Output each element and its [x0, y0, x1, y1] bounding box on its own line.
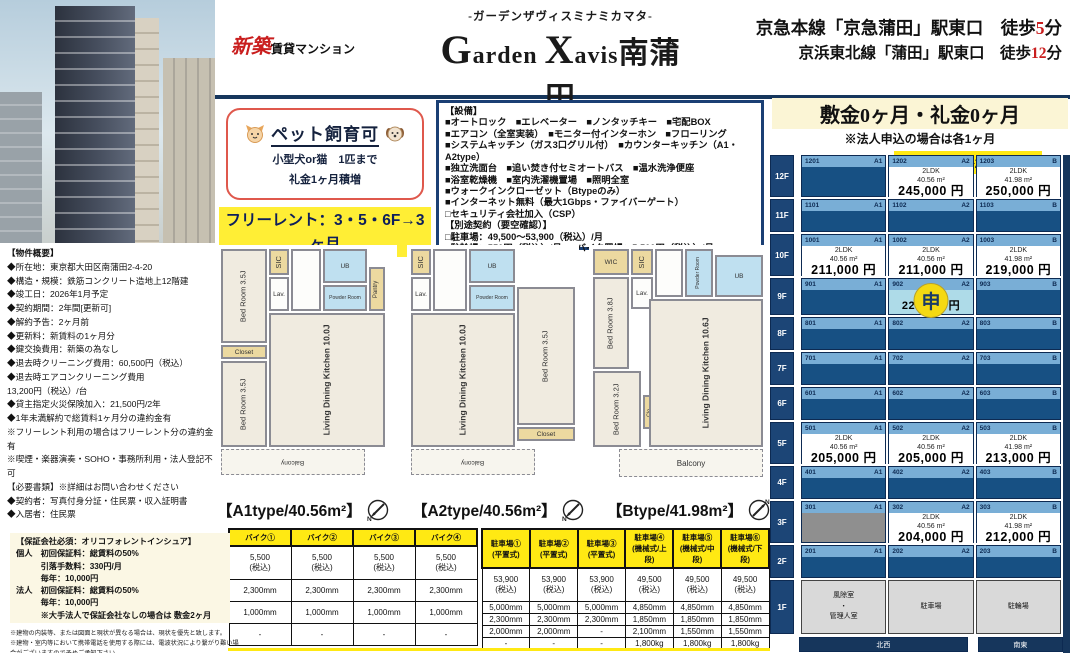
unit-type: B — [1052, 469, 1057, 476]
floor-label: 11F — [770, 199, 794, 232]
room-number: 1201 — [805, 158, 819, 165]
room-number: 1202 — [892, 158, 906, 165]
unit-type: A1 — [874, 281, 882, 288]
pet-line-2: 礼金1ヶ月積増 — [228, 171, 422, 187]
room-label: Bed Room 3.8J — [607, 297, 616, 349]
text-line: ■オートロック ■エレベーター ■ノンタッチキー ■宅配BOX — [445, 117, 755, 128]
table-cell: 2,000mm — [530, 626, 578, 638]
table-cell: 4,850mm — [721, 602, 769, 614]
unit-type: B — [1052, 158, 1057, 165]
table-cell: 1,850mm — [625, 614, 673, 626]
floor-row-8F: 8F801A1802A2803B — [770, 317, 1063, 350]
unit-type: B — [1052, 425, 1057, 432]
room-a2-bath: UB — [469, 249, 515, 283]
unit-cell-body — [802, 364, 885, 384]
unit-cell-header: 701A1 — [802, 353, 885, 364]
floor-row-2F: 2F201A1202A2203B — [770, 545, 1063, 578]
unit-cell-1102: 1102A2 — [888, 199, 973, 232]
right-border-strip — [1063, 155, 1070, 653]
text-line: ◆1年未満解約で総賃料1ヶ月分の違約金有 — [7, 412, 219, 426]
room-label: Living Dining Kitchen 10.6J — [701, 317, 711, 428]
floor-label: 4F — [770, 466, 794, 499]
room-b-bedroom-2: Bed Room 3.2J — [593, 371, 641, 447]
unit-cell-header: 503B — [977, 423, 1060, 434]
bike-parking-table: バイク①バイク②バイク③バイク④5,500 (税込)5,500 (税込)5,50… — [228, 528, 478, 646]
table-header-cell: 駐車場② (平置式) — [530, 529, 578, 568]
room-a2-hall — [433, 249, 467, 311]
text-line: ◆解約予告：2ヶ月前 — [7, 316, 219, 330]
plan-label-text: 【Btype/41.98m²】 — [607, 499, 743, 521]
room-number: 302 — [892, 504, 903, 511]
room-number: 1001 — [805, 237, 819, 244]
pet-title: ペット飼育可 — [271, 120, 379, 147]
building-photo — [0, 0, 215, 243]
table-cell: - — [353, 624, 415, 646]
unit-cell-303: 303B2LDK41.98 m²212,000 円 — [976, 501, 1061, 543]
table-cell: 2,300mm — [291, 580, 353, 602]
text-line: ■インターネット無料（最大1Gbps・ファイバーゲート） — [445, 197, 755, 208]
table-cell: - — [415, 624, 477, 646]
room-a1-hall — [291, 249, 321, 311]
floor-row-1F: 1F風除室 ・ 管理人室駐車場駐輪場 — [770, 580, 1063, 634]
room-number: 603 — [980, 390, 991, 397]
title-avis: avis — [575, 43, 619, 69]
unit-type: B — [1052, 390, 1057, 397]
room-b-balcony: Balcony — [619, 449, 763, 477]
room-number: 902 — [892, 281, 903, 288]
unit-type: B — [1052, 504, 1057, 511]
text-line: ■エアコン（全室実装） ■モニター付インターホン ■フローリング — [445, 129, 755, 140]
table-cell: 5,500 (税込) — [415, 546, 477, 580]
unit-type: A2 — [961, 469, 969, 476]
unit-cell-header: 403B — [977, 467, 1060, 478]
plan-label-b: 【Btype/41.98m²】 N — [607, 498, 771, 522]
room-a1-ldk: Living Dining Kitchen 10.0J — [269, 313, 385, 447]
unit-cell-603: 603B — [976, 387, 1061, 420]
unit-cell-802: 802A2 — [888, 317, 973, 350]
unit-cell-1203: 1203B2LDK41.98 m²250,000 円 — [976, 155, 1061, 197]
station-1-name: 京急本線「京急蒲田」駅東口 — [756, 18, 1001, 38]
room-a1-bedroom-2: Bed Room 3.5J — [221, 361, 267, 447]
unit-type: B — [1052, 355, 1057, 362]
table-cell: 5,000mm — [482, 602, 530, 614]
text-line: ◆更新料：新賃料の1ヶ月分 — [7, 330, 219, 344]
unit-cell-301: 301A1 — [801, 501, 886, 543]
orientation-bar: 北西 — [799, 637, 968, 652]
photo-main-tower — [55, 6, 135, 243]
table-cell: 1,000mm — [291, 602, 353, 624]
unit-cell-1202: 1202A22LDK40.56 m²245,000 円 — [888, 155, 973, 197]
room-label: Powder Room — [329, 295, 361, 301]
unit-type: A2 — [961, 425, 969, 432]
text-line: ※建物の内装等、または図面と現状が異なる場合は、現状を優先と致します。 — [10, 629, 240, 639]
floor-row-3F: 3F301A1302A22LDK40.56 m²204,000 円303B2LD… — [770, 501, 1063, 543]
unit-cell-body — [889, 364, 972, 384]
room-number: 201 — [805, 548, 816, 555]
text-line: 毎年：10,000円 — [16, 573, 224, 585]
floor-label: 2F — [770, 545, 794, 578]
unit-cell-header: 1101A1 — [802, 200, 885, 211]
table-header-cell: 駐車場④ (機械式/上段) — [625, 529, 673, 568]
text-line: 引落手数料：330円/月 — [16, 561, 224, 573]
facility-cell: 駐輪場 — [976, 580, 1061, 634]
unit-cell-header: 803B — [977, 318, 1060, 329]
table-cell: 1,550mm — [673, 626, 721, 638]
room-label: Bed Room 3.5J — [542, 330, 551, 382]
unit-cell-body — [802, 167, 885, 196]
unit-cell-body — [977, 557, 1060, 577]
room-number: 903 — [980, 281, 991, 288]
applied-badge: 申 — [913, 283, 948, 318]
unit-price-grid: 12F1201A11202A22LDK40.56 m²245,000 円1203… — [770, 155, 1063, 652]
unit-cell-body: 2LDK41.98 m²250,000 円 — [977, 167, 1060, 198]
room-label: Lav. — [415, 291, 427, 298]
room-number: 502 — [892, 425, 903, 432]
text-line: ◆竣工日：2026年1月予定 — [7, 288, 219, 302]
unit-type: A1 — [874, 504, 882, 511]
unit-cell-302: 302A22LDK40.56 m²204,000 円 — [888, 501, 973, 543]
unit-cell-header: 302A2 — [889, 502, 972, 513]
unit-type: A1 — [874, 320, 882, 327]
unit-cell-1003: 1003B2LDK41.98 m²219,000 円 — [976, 234, 1061, 276]
room-a1-pantry: Pantry — [369, 267, 385, 311]
table-header-cell: 駐車場⑤ (機械式/中段) — [673, 529, 721, 568]
room-a2-lavatory: Lav. — [411, 277, 431, 311]
room-a1-lavatory: Lav. — [269, 277, 289, 311]
floor-label: 8F — [770, 317, 794, 350]
unit-type: B — [1052, 202, 1057, 209]
car-parking-table: 駐車場① (平置式)駐車場② (平置式)駐車場③ (平置式)駐車場④ (機械式/… — [481, 528, 770, 650]
text-line: ◆契約者：写真付身分証・住民票・収入証明書 — [7, 495, 219, 509]
unit-cell-body — [977, 211, 1060, 231]
table-cell: 1,550mm — [721, 626, 769, 638]
unit-cell-header: 1203B — [977, 156, 1060, 167]
unit-cell-body — [889, 557, 972, 577]
room-number: 602 — [892, 390, 903, 397]
text-line: ※建物・室内等において携帯電話を使用する際には、電波状況により繋がり難い場合がご… — [10, 639, 240, 653]
room-number: 801 — [805, 320, 816, 327]
unit-cell-body — [802, 399, 885, 419]
guarantor-box: 【保証会社必須：オリコフォレントインシュア】個人 初回保証料：総賃料の50% 引… — [10, 533, 230, 623]
room-a2-bedroom: Bed Room 3.5J — [517, 287, 575, 425]
unit-type: A2 — [961, 355, 969, 362]
unit-cell-903: 903B — [976, 278, 1061, 315]
unit-cell-body: 2LDK40.56 m²204,000 円 — [889, 513, 972, 544]
room-label: UB — [487, 263, 496, 270]
new-build-badge: 新築賃貸マンション — [215, 0, 431, 95]
room-label: Living Dining Kitchen 10.0J — [322, 324, 332, 435]
unit-cell-header: 502A2 — [889, 423, 972, 434]
table-cell: - — [578, 626, 626, 638]
table-header-cell: 駐車場① (平置式) — [482, 529, 530, 568]
unit-type: B — [1052, 281, 1057, 288]
text-line: 【物件概要】 — [7, 247, 219, 261]
unit-cell-header: 1001A1 — [802, 235, 885, 246]
unit-cell-body: 2LDK40.56 m²211,000 円 — [889, 246, 972, 277]
unit-type: B — [1052, 548, 1057, 555]
unit-cell-header: 603B — [977, 388, 1060, 399]
room-label: Living Dining Kitchen 10.0J — [458, 324, 468, 435]
unit-cell-801: 801A1 — [801, 317, 886, 350]
unit-cell-header: 301A1 — [802, 502, 885, 513]
unit-type: A1 — [874, 548, 882, 555]
table-cell: 1,000mm — [353, 602, 415, 624]
station-2-walk: 徒歩 — [1000, 45, 1031, 62]
table-cell: 1,850mm — [673, 614, 721, 626]
fine-print: ※建物の内装等、または図面と現状が異なる場合は、現状を優先と致します。※建物・室… — [10, 629, 240, 653]
table-header-cell: バイク② — [291, 529, 353, 546]
unit-cell-body — [889, 399, 972, 419]
table-cell: 2,300mm — [229, 580, 291, 602]
unit-cell-body — [977, 399, 1060, 419]
floor-row-6F: 6F601A1602A2603B — [770, 387, 1063, 420]
room-a1-sic: SIC — [269, 249, 289, 275]
room-a2-ldk: Living Dining Kitchen 10.0J — [411, 313, 515, 447]
room-label: Bed Room 3.5J — [240, 270, 249, 322]
unit-cell-901: 901A1 — [801, 278, 886, 315]
room-a2-sic: SIC — [411, 249, 431, 275]
room-b-bath: UB — [715, 255, 763, 297]
unit-cell-header: 801A1 — [802, 318, 885, 329]
pet-allowed-box: ペット飼育可 小型犬or猫 1匹まで 礼金1ヶ月積増 — [226, 108, 424, 200]
text-line: ◆構造・規模：鉄筋コンクリート造地上12階建 — [7, 275, 219, 289]
compass-icon: N — [366, 498, 390, 522]
orientation-footer: 北西南東 — [799, 637, 1063, 652]
floor-label: 12F — [770, 155, 794, 197]
table-cell: 5,000mm — [530, 602, 578, 614]
title-arden: arden — [473, 43, 545, 69]
text-line: ◆入居者：住民票 — [7, 508, 219, 522]
facility-cell: 風除室 ・ 管理人室 — [801, 580, 886, 634]
text-line: ◆退去時クリーニング費用：60,500円（税込） — [7, 357, 219, 371]
unit-cell-body: 2LDK40.56 m²245,000 円 — [889, 167, 972, 198]
room-number: 501 — [805, 425, 816, 432]
unit-type: A1 — [874, 237, 882, 244]
unit-cell-201: 201A1 — [801, 545, 886, 578]
room-label: UB — [734, 273, 743, 280]
unit-cell-702: 702A2 — [888, 352, 973, 385]
unit-cell-body: 2LDK41.98 m²212,000 円 — [977, 513, 1060, 544]
room-label: WIC — [605, 259, 618, 266]
table-cell: 53,900 (税込) — [530, 568, 578, 602]
table-cell: 2,300mm — [578, 614, 626, 626]
table-cell: 2,100mm — [625, 626, 673, 638]
room-number: 402 — [892, 469, 903, 476]
unit-cell-header: 401A1 — [802, 467, 885, 478]
unit-cell-header: 601A1 — [802, 388, 885, 399]
station-1-walk: 徒歩 — [1001, 18, 1036, 38]
unit-cell-703: 703B — [976, 352, 1061, 385]
floorplan-a1: Bed Room 3.5J Closet Bed Room 3.5J SIC L… — [217, 245, 397, 493]
text-line: ◆貸主指定火災保険加入：21,500円/2年 — [7, 398, 219, 412]
room-label: Bed Room 3.2J — [613, 383, 622, 435]
unit-cell-701: 701A1 — [801, 352, 886, 385]
unit-type: A1 — [874, 469, 882, 476]
floor-row-4F: 4F401A1402A2403B — [770, 466, 1063, 499]
station-2-name: 京浜東北線「蒲田」駅東口 — [798, 45, 1000, 62]
table-header-cell: バイク④ — [415, 529, 477, 546]
unit-type: B — [1052, 237, 1057, 244]
unit-cell-403: 403B — [976, 466, 1061, 499]
table-cell: 2,300mm — [530, 614, 578, 626]
text-line: ※フリーレント利用の場合はフリーレント分の違約金有 — [7, 426, 219, 454]
unit-cell-header: 1202A2 — [889, 156, 972, 167]
table-cell: 5,500 (税込) — [229, 546, 291, 580]
unit-cell-501: 501A12LDK40.56 m²205,000 円 — [801, 422, 886, 464]
unit-cell-body — [889, 329, 972, 349]
room-number: 1103 — [980, 202, 994, 209]
floor-row-12F: 12F1201A11202A22LDK40.56 m²245,000 円1203… — [770, 155, 1063, 197]
table-cell: 2,300mm — [482, 614, 530, 626]
room-label: Balcony — [461, 459, 484, 466]
plan-label-a1: 【A1type/40.56m²】 N — [217, 498, 390, 522]
table-cell: 2,000mm — [482, 626, 530, 638]
unit-cell-body — [977, 364, 1060, 384]
room-number: 1003 — [980, 237, 994, 244]
unit-cell-body — [977, 290, 1060, 314]
room-label: UB — [340, 263, 349, 270]
text-line: ※大手法人で保証会社なしの場合は 敷金2ヶ月 — [16, 610, 224, 622]
unit-cell-body: 2LDK41.98 m²213,000 円 — [977, 434, 1060, 465]
unit-type: A1 — [874, 425, 882, 432]
unit-cell-body: 2LDK40.56 m²211,000 円 — [802, 246, 885, 277]
unit-cell-body — [977, 478, 1060, 498]
text-line: ◆鍵交換費用：新築の為なし — [7, 343, 219, 357]
unit-cell-body — [977, 329, 1060, 349]
floor-row-10F: 10F1001A12LDK40.56 m²211,000 円1002A22LDK… — [770, 234, 1063, 276]
deposit-note: ※法人申込の場合は各1ヶ月 — [772, 130, 1068, 147]
text-line: ■独立洗面台 ■追い焚き付セミオートバス ■温水洗浄便座 — [445, 163, 755, 174]
pet-line-1: 小型犬or猫 1匹まで — [228, 151, 422, 167]
table-cell: 49,500 (税込) — [673, 568, 721, 602]
compass-icon: N — [747, 498, 771, 522]
room-number: 701 — [805, 355, 816, 362]
table-header-cell: 駐車場⑥ (機械式/下段) — [721, 529, 769, 568]
title-block: -ガーデンザヴィスミナミカマタ- Garden Xavis南蒲田 — [431, 0, 690, 95]
unit-cell-header: 402A2 — [889, 467, 972, 478]
title-g: G — [440, 27, 472, 72]
property-overview: 【物件概要】◆所在地：東京都大田区南蒲田2-4-20◆構造・規模：鉄筋コンクリー… — [7, 247, 219, 522]
room-label: Bed Room 3.5J — [240, 378, 249, 430]
unit-cell-header: 703B — [977, 353, 1060, 364]
unit-cell-header: 1002A2 — [889, 235, 972, 246]
unit-cell-202: 202A2 — [888, 545, 973, 578]
unit-cell-602: 602A2 — [888, 387, 973, 420]
unit-cell-body — [802, 478, 885, 498]
dog-icon — [385, 125, 405, 143]
floor-row-11F: 11F1101A11102A21103B — [770, 199, 1063, 232]
deposit-headline: 敷金0ヶ月・礼金0ヶ月 — [772, 98, 1068, 129]
table-cell: 1,000mm — [229, 602, 291, 624]
floor-label: 1F — [770, 580, 794, 634]
cat-icon — [245, 125, 265, 143]
room-a2-closet: Closet — [517, 427, 575, 441]
unit-cell-body — [889, 211, 972, 231]
unit-cell-body — [802, 290, 885, 314]
station-row-2: 京浜東北線「蒲田」駅東口 徒歩12分 — [690, 42, 1062, 67]
unit-cell-401: 401A1 — [801, 466, 886, 499]
room-b-ldk: Living Dining Kitchen 10.6J — [649, 299, 763, 447]
table-cell: 1,000mm — [415, 602, 477, 624]
room-number: 803 — [980, 320, 991, 327]
room-label: Powder Room — [476, 295, 508, 301]
room-number: 203 — [980, 548, 991, 555]
room-b-powder-room: Powder Room — [685, 249, 713, 297]
floor-label: 9F — [770, 278, 794, 315]
room-a2-powder-room: Powder Room — [469, 285, 515, 311]
photo-side-building-left — [0, 92, 42, 243]
room-number: 802 — [892, 320, 903, 327]
floor-label: 3F — [770, 501, 794, 543]
text-line: ◆所在地：東京都大田区南蒲田2-4-20 — [7, 261, 219, 275]
station-2-unit: 分 — [1046, 45, 1062, 62]
unit-cell-body: 2LDK40.56 m²205,000 円 — [889, 434, 972, 465]
floorplans: Bed Room 3.5J Closet Bed Room 3.5J SIC L… — [215, 245, 773, 495]
floor-label: 7F — [770, 352, 794, 385]
compass-icon: N — [561, 498, 585, 522]
unit-type: A2 — [961, 504, 969, 511]
unit-cell-header: 202A2 — [889, 546, 972, 557]
text-line: 個人 初回保証料：総賃料の50% — [16, 548, 224, 560]
room-number: 403 — [980, 469, 991, 476]
rental-label: 賃貸マンション — [271, 42, 355, 56]
unit-type: A1 — [874, 355, 882, 362]
unit-cell-902: 902A2220,000 円申 — [888, 278, 973, 315]
room-number: 1102 — [892, 202, 906, 209]
room-a2-balcony: Balcony — [411, 449, 535, 475]
room-a1-balcony: Balcony — [221, 449, 365, 475]
unit-cell-body: 220,000 円申 — [889, 290, 972, 314]
room-b-hall — [655, 249, 683, 297]
new-label: 新築 — [231, 36, 271, 58]
plan-type-labels: 【A1type/40.56m²】 N 【A2type/40.56m²】 N 【B… — [215, 498, 773, 522]
orientation-bar: 南東 — [978, 637, 1063, 652]
room-label: Closet — [537, 431, 555, 438]
header: 新築賃貸マンション -ガーデンザヴィスミナミカマタ- Garden Xavis南… — [215, 0, 1070, 99]
unit-cell-body — [802, 211, 885, 231]
svg-text:N: N — [367, 516, 372, 522]
room-number: 901 — [805, 281, 816, 288]
room-number: 202 — [892, 548, 903, 555]
unit-cell-header: 802A2 — [889, 318, 972, 329]
room-b-wic: WIC — [593, 249, 629, 275]
unit-cell-1201: 1201A1 — [801, 155, 886, 197]
room-label: Lav. — [273, 291, 285, 298]
unit-cell-header: 901A1 — [802, 279, 885, 290]
room-label: SIC — [417, 256, 426, 269]
unit-cell-1103: 1103B — [976, 199, 1061, 232]
unit-cell-803: 803B — [976, 317, 1061, 350]
text-line: ◆契約期間：2年間[更新可] — [7, 302, 219, 316]
room-number: 703 — [980, 355, 991, 362]
unit-type: A2 — [961, 202, 969, 209]
table-header-cell: バイク③ — [353, 529, 415, 546]
title-kana: -ガーデンザヴィスミナミカマタ- — [431, 8, 690, 24]
unit-type: A2 — [961, 158, 969, 165]
text-line: ※喫煙・楽器演奏・SOHO・事務所利用・法人登記不可 — [7, 453, 219, 481]
room-a1-bedroom-1: Bed Room 3.5J — [221, 249, 267, 343]
unit-cell-body: 2LDK41.98 m²219,000 円 — [977, 246, 1060, 277]
unit-cell-body: 2LDK40.56 m²205,000 円 — [802, 434, 885, 465]
room-label: Pantry — [374, 280, 381, 297]
unit-cell-header: 702A2 — [889, 353, 972, 364]
text-line: ■システムキッチン（ガス3口グリル付） ■カウンターキッチン（A1・A2type… — [445, 140, 755, 163]
table-cell: 1,850mm — [721, 614, 769, 626]
unit-cell-header: 1102A2 — [889, 200, 972, 211]
floor-label: 10F — [770, 234, 794, 276]
table-cell: 49,500 (税込) — [721, 568, 769, 602]
unit-cell-header: 903B — [977, 279, 1060, 290]
